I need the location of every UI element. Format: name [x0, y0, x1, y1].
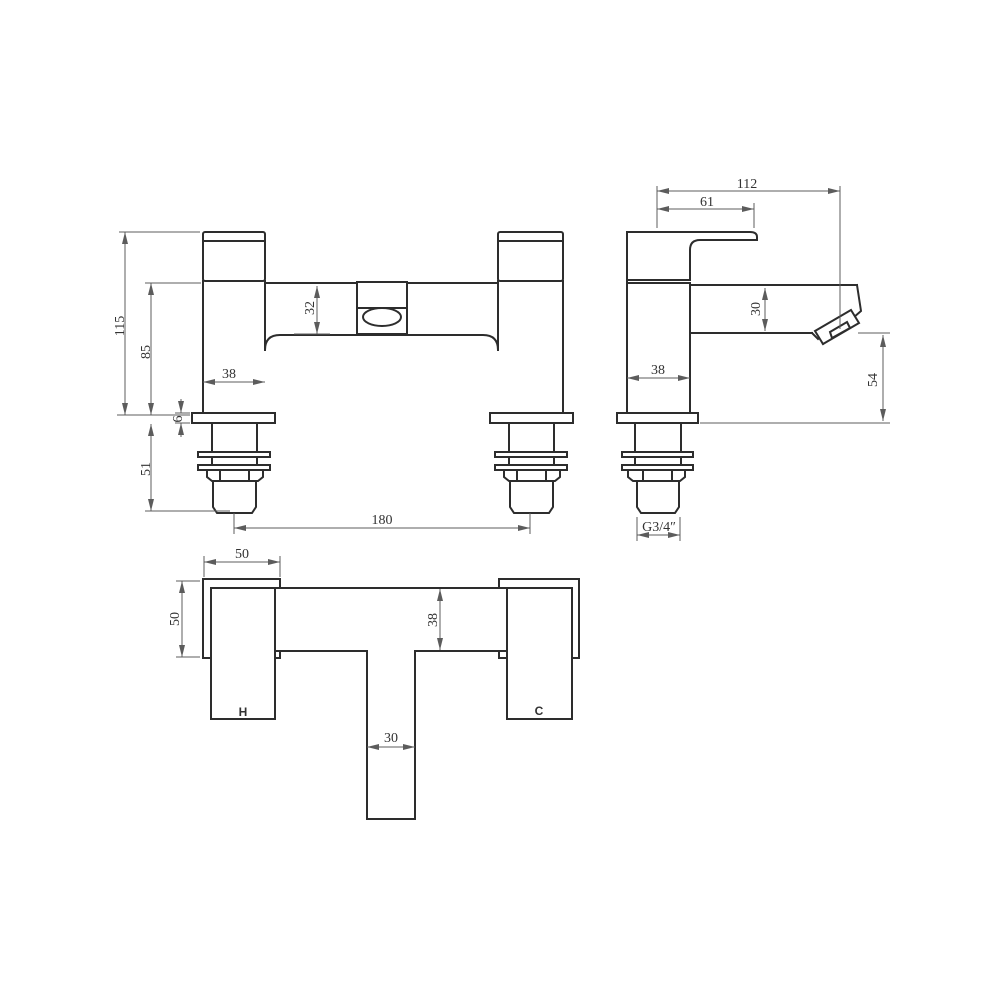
- side-threaded-tail: [637, 481, 679, 513]
- front-right-threaded-tail: [510, 481, 553, 513]
- front-left-backnut: [207, 470, 263, 481]
- dim-label-plate-thickness: 6: [171, 416, 186, 423]
- dim-label-thread-size: G3/4″: [642, 520, 676, 535]
- dim-label-pillar-width: 38: [222, 367, 236, 382]
- plan-body-and-spout: [275, 588, 507, 819]
- front-right-shank: [495, 423, 567, 513]
- plan-cold-handle: [507, 588, 572, 719]
- front-bridge-underside: [265, 335, 498, 350]
- dim-label-body-width: 38: [651, 363, 665, 378]
- front-right-base-plate: [490, 413, 573, 423]
- front-left-threaded-tail: [213, 481, 256, 513]
- dim-label-body-depth: 38: [426, 613, 441, 627]
- front-left-base-plate: [192, 413, 275, 423]
- dim-label-body-height: 85: [139, 345, 154, 359]
- front-left-shank: [198, 423, 270, 513]
- side-shank: [622, 423, 693, 513]
- front-right-backnut: [504, 470, 560, 481]
- dim-label-spout-clearance: 54: [866, 373, 881, 387]
- dim-label-handle-reach: 61: [700, 195, 714, 210]
- hot-label: H: [239, 705, 248, 719]
- plan-view: H C: [203, 579, 579, 819]
- dim-label-handle-width: 50: [235, 547, 249, 562]
- front-right-handle: [498, 232, 563, 281]
- front-left-washer-upper: [198, 452, 270, 457]
- side-base-plate: [617, 413, 698, 423]
- front-right-washer-upper: [495, 452, 567, 457]
- side-washer-upper: [622, 452, 693, 457]
- dim-label-spout-width: 30: [384, 731, 398, 746]
- plan-hot-handle: [211, 588, 275, 719]
- drawing-canvas: 115 85 6 51 38 32 180: [0, 0, 1000, 1000]
- dim-label-tap-centres: 180: [372, 513, 393, 528]
- dim-label-bridge-height: 32: [303, 301, 318, 315]
- dim-label-spout-depth: 30: [749, 302, 764, 316]
- tap-technical-drawing-page: 115 85 6 51 38 32 180: [0, 0, 1000, 1000]
- dim-label-overall-height: 115: [113, 316, 128, 336]
- side-handle-lever: [627, 232, 757, 280]
- front-left-handle: [203, 232, 265, 281]
- front-view: [192, 232, 573, 513]
- dim-label-shank-length: 51: [139, 462, 154, 476]
- dim-label-handle-depth: 50: [168, 612, 183, 626]
- diverter-knob: [363, 308, 401, 326]
- cold-label: C: [535, 704, 544, 718]
- side-backnut: [628, 470, 685, 481]
- front-view-dimensions: 115 85 6 51 38 32 180: [113, 232, 530, 534]
- dim-label-overall-depth: 112: [737, 177, 757, 192]
